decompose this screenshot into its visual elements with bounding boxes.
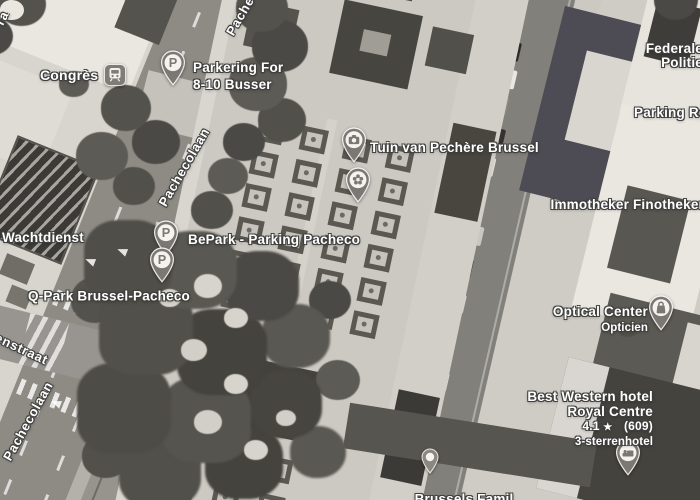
- poi-rating-row: 4.1 ★ (609): [527, 419, 653, 435]
- poi-label-line: Royal Centre: [527, 404, 653, 419]
- poi-label-line: Optical Center: [553, 303, 648, 320]
- parterre: [248, 150, 278, 179]
- parterre: [371, 210, 401, 239]
- rating-star-icon: ★: [603, 422, 612, 433]
- parterre: [165, 474, 195, 500]
- parterre: [306, 301, 336, 330]
- parking-letter: P: [162, 226, 171, 240]
- area-label-federale-politie: Federale Politie: [646, 42, 700, 70]
- parterre: [227, 250, 257, 279]
- parterre: [292, 159, 322, 188]
- parterre: [220, 283, 250, 312]
- station-label: Congrès: [40, 67, 98, 84]
- hedge-square: [425, 26, 474, 74]
- parking-pin-icon[interactable]: P: [149, 247, 175, 283]
- area-label-line: Politie: [646, 56, 700, 70]
- hedge-square: [377, 0, 418, 1]
- parking-pin-icon[interactable]: P: [160, 50, 186, 86]
- parterre: [349, 310, 379, 339]
- train-station-icon[interactable]: [104, 64, 126, 86]
- poi-label-best-western[interactable]: Best Western hotel Royal Centre 4.1 ★ (6…: [527, 389, 653, 450]
- area-label-line: Federale: [646, 42, 700, 56]
- parking-letter: P: [169, 56, 178, 70]
- parterre: [327, 201, 357, 230]
- parterre: [363, 244, 393, 273]
- parterre: [356, 277, 386, 306]
- poi-category: 3-sterrenhotel: [527, 435, 653, 450]
- poi-label-line: Best Western hotel: [527, 389, 653, 404]
- area-label-immotheker: Immotheker Finotheker: [551, 196, 700, 213]
- poi-label-line: Parkering For: [193, 59, 283, 76]
- transit-station-congres[interactable]: Congrès: [40, 64, 126, 86]
- poi-label-parkering[interactable]: Parkering For 8-10 Busser: [193, 59, 283, 93]
- generic-dot-pin-icon[interactable]: [421, 448, 439, 474]
- poi-label-optical[interactable]: Optical Center Opticien: [553, 303, 648, 337]
- parterre: [173, 436, 203, 465]
- area-label-parking-r: Parking Ro: [634, 104, 700, 121]
- parterre: [210, 483, 240, 500]
- parterre: [313, 268, 343, 297]
- poi-category: Opticien: [553, 320, 648, 337]
- poi-label-bottom-clipped[interactable]: Brussels Famil: [415, 491, 514, 500]
- parterre: [263, 292, 293, 321]
- area-label-wachtdienst: Wachtdienst: [2, 229, 84, 246]
- camera-attraction-pin-icon[interactable]: [341, 127, 367, 163]
- parterre: [378, 177, 408, 206]
- rating-value: 4.1: [582, 419, 599, 433]
- map-canvas[interactable]: Congrès P Parkering For 8-10 Busser Pach…: [0, 0, 700, 500]
- parterre: [299, 126, 329, 155]
- poi-label-bepark[interactable]: BePark - Parking Pacheco: [188, 231, 360, 248]
- parterre: [218, 446, 248, 475]
- poi-label-qpark[interactable]: Q-Park Brussel-Pacheco: [28, 288, 190, 305]
- parking-letter: P: [158, 253, 167, 267]
- parterre: [270, 259, 300, 288]
- poi-label-tuin[interactable]: Tuin van Pechère Brussel: [370, 139, 539, 156]
- parterre: [256, 117, 286, 146]
- shopping-bag-pin-icon[interactable]: [648, 295, 674, 331]
- parterre: [284, 192, 314, 221]
- poi-label-line: 8-10 Busser: [193, 76, 283, 93]
- rating-reviews: (609): [624, 419, 653, 433]
- flower-garden-pin-icon[interactable]: [345, 167, 371, 203]
- parterre: [241, 183, 271, 212]
